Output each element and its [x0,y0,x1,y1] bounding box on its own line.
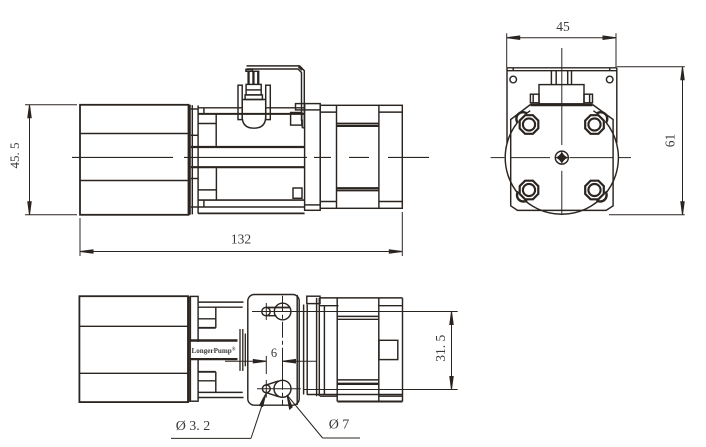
svg-text:Ø 7: Ø 7 [329,418,350,433]
svg-text:61: 61 [663,134,678,148]
svg-text:45. 5: 45. 5 [7,143,22,169]
svg-text:Ø 3. 2: Ø 3. 2 [176,419,211,434]
svg-text:6: 6 [271,346,277,360]
svg-text:31. 5: 31. 5 [433,334,448,361]
svg-text:LongerPump®: LongerPump® [192,347,236,355]
svg-text:45: 45 [556,19,570,34]
svg-text:132: 132 [231,232,251,247]
